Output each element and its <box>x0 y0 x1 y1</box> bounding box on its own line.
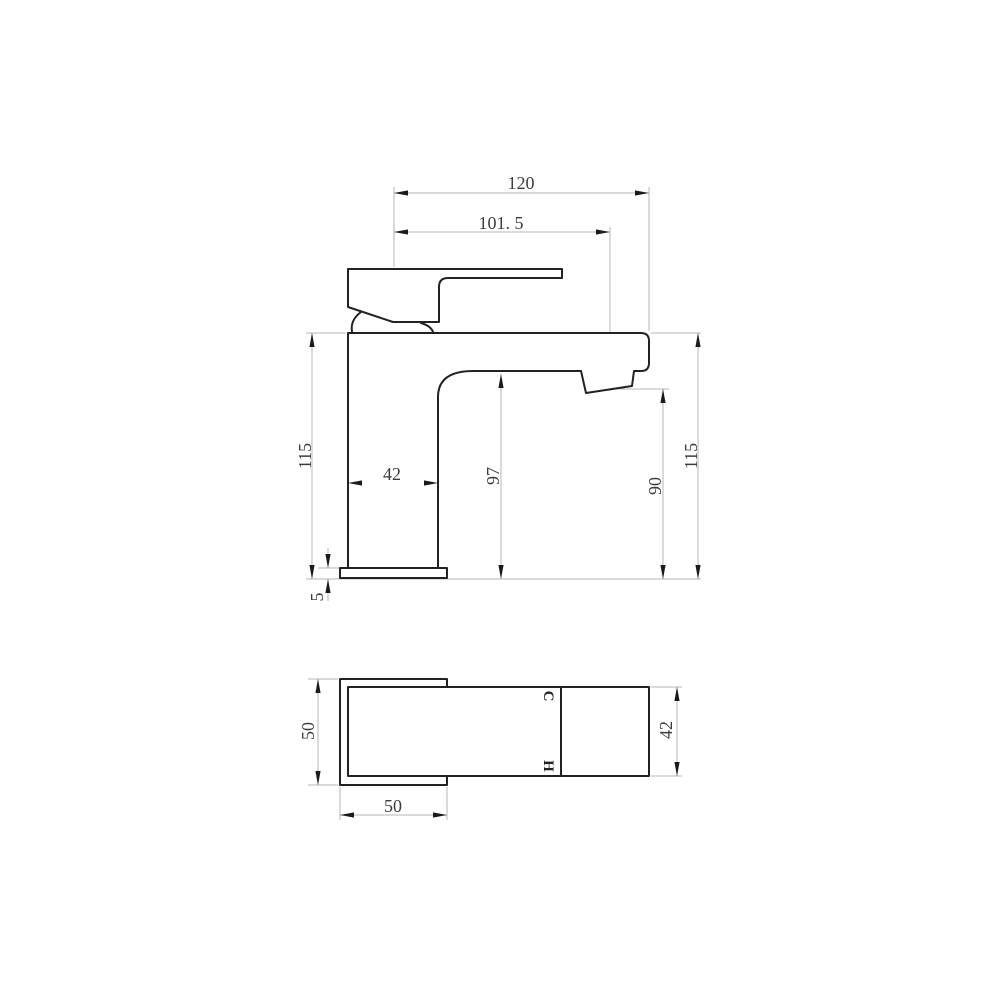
dim-label-height-right: 115 <box>681 443 701 469</box>
cartridge-dome-arc-left <box>352 312 361 332</box>
arrowhead <box>695 565 700 579</box>
faucet-body-outline <box>348 333 649 568</box>
arrowhead <box>498 565 503 579</box>
dim-label-base-depth: 50 <box>298 722 318 740</box>
arrowhead <box>596 229 610 234</box>
arrowhead <box>325 554 330 568</box>
dim-label-base-width: 50 <box>384 796 402 816</box>
arrowhead <box>325 579 330 593</box>
dim-label-overall-width: 120 <box>508 173 535 193</box>
arrowhead <box>309 333 314 347</box>
dim-label-underspout-height: 97 <box>483 467 503 485</box>
arrowhead <box>695 333 700 347</box>
side-view-shapes <box>340 269 649 578</box>
faucet-handle-outline <box>348 269 562 322</box>
dim-label-spout-reach: 101. 5 <box>479 213 524 233</box>
arrowhead <box>309 565 314 579</box>
arrowhead <box>635 190 649 195</box>
arrowhead <box>315 771 320 785</box>
dim-label-outlet-height: 90 <box>645 477 665 495</box>
cold-indicator-label: C <box>540 691 556 702</box>
hot-indicator-label: H <box>540 760 556 772</box>
base-plate <box>340 568 447 578</box>
arrowhead <box>674 762 679 776</box>
arrowhead <box>674 687 679 701</box>
cartridge-dome-arc-right <box>421 323 433 332</box>
arrowhead <box>394 190 408 195</box>
arrowhead <box>498 374 503 388</box>
arrowhead <box>433 812 447 817</box>
arrowhead <box>394 229 408 234</box>
arrowhead <box>660 565 665 579</box>
plan-view-shapes <box>340 679 649 785</box>
arrowhead <box>315 679 320 693</box>
technical-drawing-canvas: 120 101. 5 115 42 97 90 115 5 50 50 42 C… <box>0 0 1000 1000</box>
dim-label-body-depth: 42 <box>656 721 676 739</box>
dim-label-body-width: 42 <box>383 464 401 484</box>
arrowhead <box>340 812 354 817</box>
plan-body-rectangle <box>348 687 649 776</box>
arrowhead <box>660 389 665 403</box>
dim-label-height-left: 115 <box>295 443 315 469</box>
dim-label-base-thickness: 5 <box>307 593 327 602</box>
